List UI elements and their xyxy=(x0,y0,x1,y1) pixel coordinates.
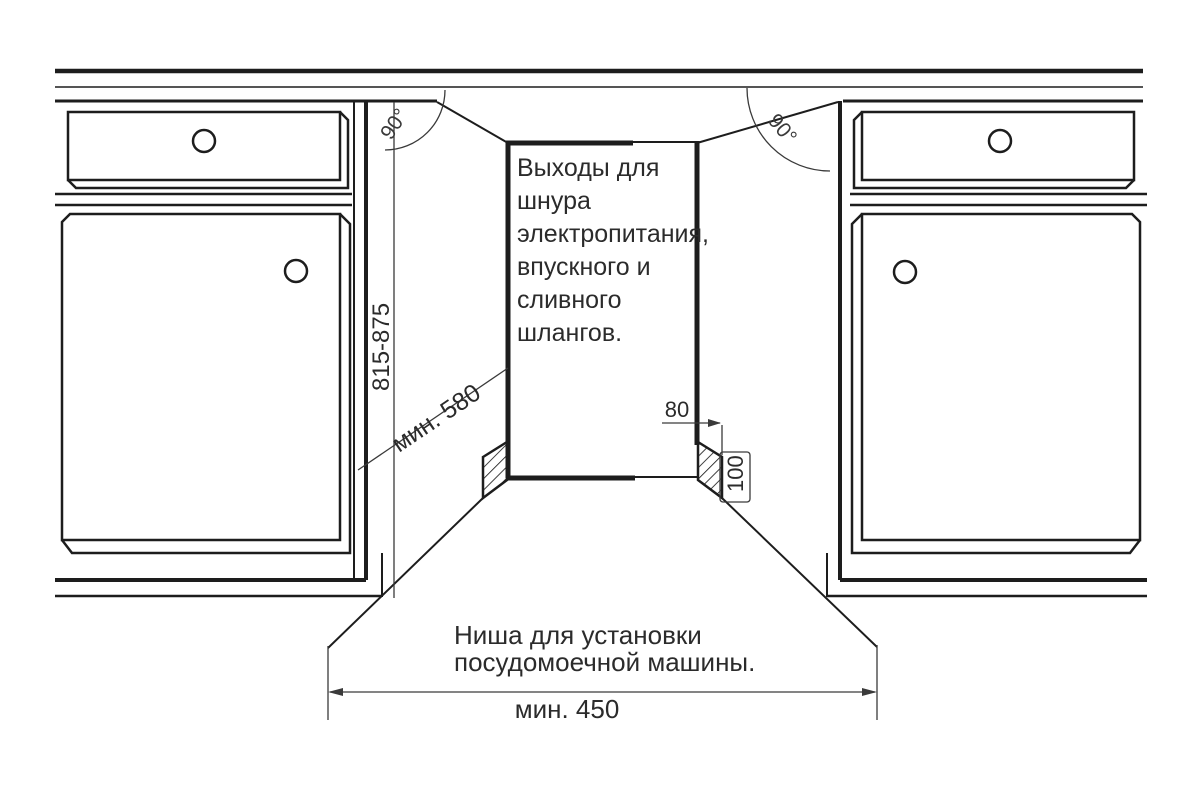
outlet-note: Выходы для шнура электропитания, впускно… xyxy=(517,154,709,347)
niche-caption: Ниша для установки посудомоечной машины. xyxy=(454,620,755,677)
diagram-canvas: Выходы для шнура электропитания, впускно… xyxy=(0,0,1200,800)
right-drawer-front xyxy=(862,112,1134,180)
outlet-note-line: электропитания, xyxy=(517,220,709,248)
right-drawer-knob xyxy=(989,130,1011,152)
width-dim-label: мин. 450 xyxy=(515,694,620,724)
right-door-knob xyxy=(894,261,916,283)
offset-dim-arrow xyxy=(708,419,721,427)
angle-right-90: 90° xyxy=(747,88,830,171)
width-dim-arrow-left xyxy=(328,688,343,696)
installation-diagram: Выходы для шнура электропитания, впускно… xyxy=(0,0,1200,800)
angle-label-left: 90° xyxy=(376,105,413,144)
countertop-lines xyxy=(55,71,1143,101)
niche-top-diagonal-left xyxy=(437,102,508,143)
left-door-edge xyxy=(62,214,350,553)
left-drawer-knob xyxy=(193,130,215,152)
niche-floor-diagonal-right xyxy=(722,498,877,647)
outlet-note-line: шнура xyxy=(517,187,591,215)
depth-dim-label: мин. 580 xyxy=(387,379,486,458)
width-dim-arrow-right xyxy=(862,688,877,696)
height-dim-label: 815-875 xyxy=(368,303,395,391)
right-wall-hatch xyxy=(698,442,722,498)
outlet-note-line: впускного и xyxy=(517,253,651,281)
outlet-note-line: шлангов. xyxy=(517,319,622,347)
right-door-front xyxy=(862,214,1140,540)
dimension-zone-100: 100 xyxy=(720,452,750,502)
outlet-note-line: сливного xyxy=(517,286,622,314)
left-wall-hatch xyxy=(483,442,507,498)
left-cabinet xyxy=(55,101,382,597)
dimension-height-815-875: 815-875 xyxy=(368,102,395,598)
right-cabinet xyxy=(827,101,1147,597)
left-door-knob xyxy=(285,260,307,282)
niche-caption-line: посудомоечной машины. xyxy=(454,647,755,677)
dimension-offset-80: 80 xyxy=(662,397,722,455)
angle-left-90: 90° xyxy=(376,90,445,150)
niche-caption-line: Ниша для установки xyxy=(454,620,702,650)
zone-dim-label: 100 xyxy=(723,455,748,492)
outlet-note-line: Выходы для xyxy=(517,154,659,182)
offset-dim-label: 80 xyxy=(665,397,689,422)
niche-outline xyxy=(328,102,877,648)
left-door-front xyxy=(62,214,340,540)
left-drawer-front xyxy=(68,112,340,180)
